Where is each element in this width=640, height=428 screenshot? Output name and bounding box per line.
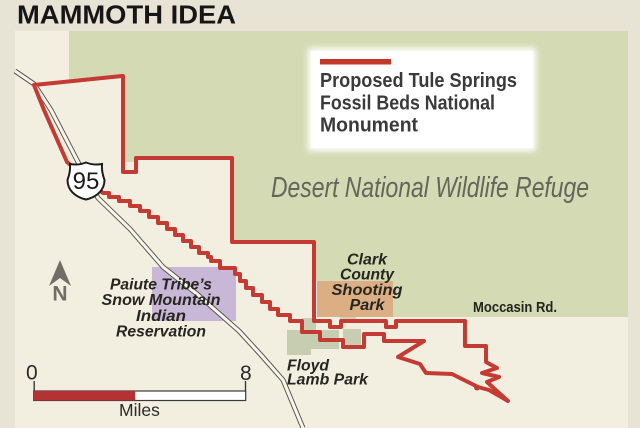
svg-text:N: N (52, 283, 67, 306)
svg-text:Paiute Tribe’s: Paiute Tribe’s (110, 276, 212, 293)
svg-text:Lamb Park: Lamb Park (287, 372, 369, 389)
svg-text:Park: Park (350, 297, 386, 314)
svg-text:95: 95 (73, 168, 100, 195)
svg-text:Fossil Beds National: Fossil Beds National (320, 92, 495, 114)
svg-text:MAMMOTH IDEA: MAMMOTH IDEA (17, 0, 236, 30)
svg-text:Desert National Wildlife Refug: Desert National Wildlife Refuge (271, 172, 589, 204)
svg-text:Snow Mountain: Snow Mountain (102, 292, 221, 309)
svg-text:0: 0 (26, 362, 38, 385)
svg-text:Proposed Tule Springs: Proposed Tule Springs (320, 70, 517, 92)
svg-text:Reservation: Reservation (116, 324, 206, 341)
svg-text:Moccasin Rd.: Moccasin Rd. (473, 299, 557, 316)
svg-text:Miles: Miles (119, 400, 160, 420)
svg-text:8: 8 (240, 362, 252, 385)
svg-text:Monument: Monument (320, 115, 418, 137)
svg-text:Indian: Indian (136, 308, 186, 325)
